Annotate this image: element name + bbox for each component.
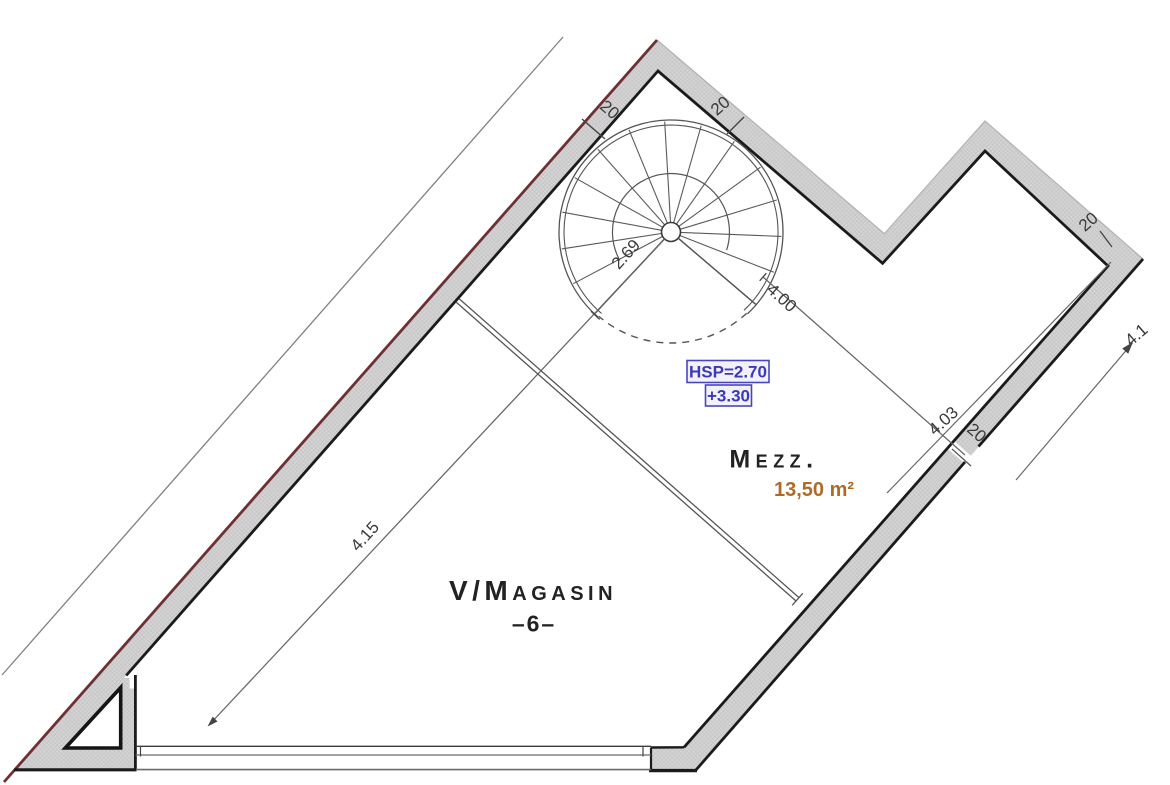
svg-text:HSP=2.70: HSP=2.70: [689, 363, 767, 382]
svg-text:13,50 m²: 13,50 m²: [774, 479, 854, 501]
svg-text:V/Magasin: V/Magasin: [449, 575, 617, 606]
svg-text:–6–: –6–: [512, 611, 556, 637]
svg-text:+3.30: +3.30: [707, 387, 750, 406]
svg-text:Mezz.: Mezz.: [729, 446, 818, 474]
